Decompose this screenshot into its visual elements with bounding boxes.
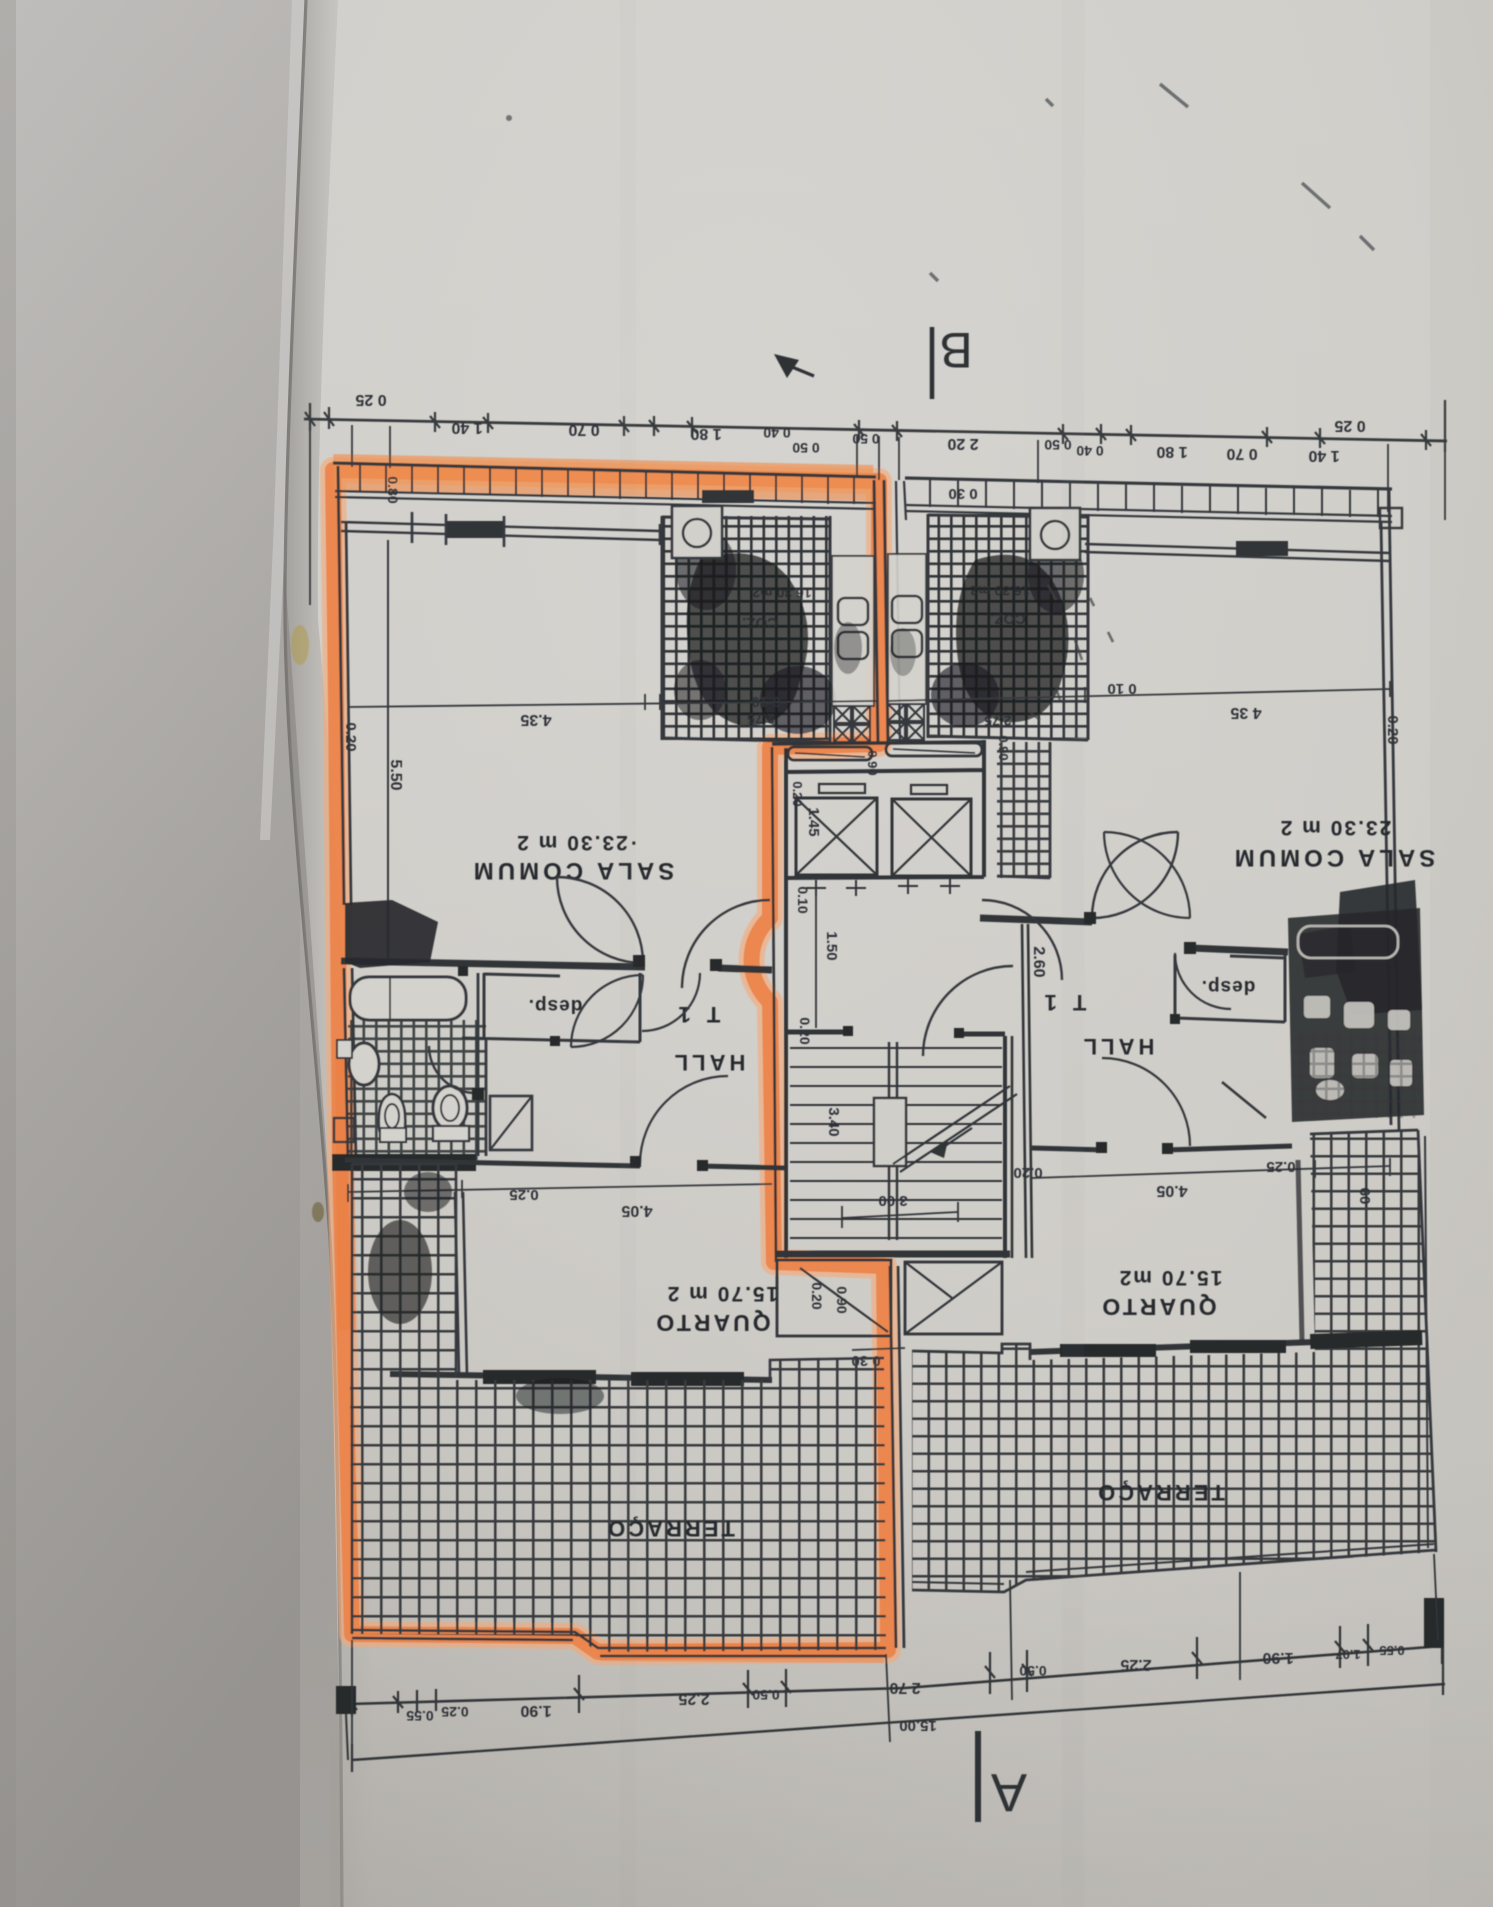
svg-text:0.55: 0.55 [406, 1708, 433, 1724]
svg-text:2.75: 2.75 [984, 713, 1011, 729]
svg-text:COZ.: COZ. [990, 610, 1026, 627]
svg-text:4 35: 4 35 [1230, 704, 1261, 721]
svg-text:0.90: 0.90 [834, 1286, 850, 1313]
svg-text:1.50: 1.50 [823, 931, 840, 960]
svg-text:3.40: 3.40 [825, 1107, 842, 1136]
svg-text:0 10: 0 10 [1107, 680, 1136, 697]
svg-text:0.20: 0.20 [1384, 715, 1401, 744]
svg-text:0 25: 0 25 [1334, 417, 1365, 434]
svg-text:15.00: 15.00 [899, 1717, 937, 1734]
svg-text:15.70 m 2: 15.70 m 2 [666, 1282, 779, 1305]
svg-text:SALA COMUM: SALA COMUM [470, 857, 674, 884]
svg-text:2.75: 2.75 [747, 711, 774, 727]
svg-text:desp.: desp. [1201, 976, 1256, 997]
svg-text:15.70 m2: 15.70 m2 [1118, 1266, 1223, 1289]
svg-text:0 25: 0 25 [355, 391, 386, 408]
svg-text:0.20: 0.20 [1013, 1164, 1042, 1181]
svg-text:1.45: 1.45 [805, 807, 822, 836]
svg-text:2.25: 2.25 [1120, 1656, 1151, 1673]
svg-text:1.90: 1.90 [520, 1702, 551, 1719]
svg-text:2 20: 2 20 [947, 435, 978, 452]
svg-text:0 50: 0 50 [852, 431, 879, 447]
svg-text:TERRAÇO: TERRAÇO [1095, 1480, 1225, 1505]
svg-text:0.20: 0.20 [342, 722, 359, 751]
svg-text:2 70: 2 70 [889, 1679, 920, 1696]
svg-text:1 80: 1 80 [690, 425, 721, 442]
svg-text:16.30 m2: 16.30 m2 [752, 585, 811, 601]
svg-text:0.25: 0.25 [1266, 1158, 1295, 1175]
svg-text:0 70: 0 70 [1226, 445, 1257, 462]
svg-text:desp.: desp. [528, 995, 583, 1016]
svg-text:SALA COMUM: SALA COMUM [1231, 844, 1435, 871]
svg-text:HALL: HALL [671, 1050, 746, 1075]
svg-text:23.30 m 2: 23.30 m 2 [1279, 816, 1392, 839]
svg-text:0.10: 0.10 [751, 693, 780, 710]
svg-text:1.90: 1.90 [1262, 1649, 1293, 1666]
svg-text:1.07: 1.07 [1335, 1647, 1360, 1662]
svg-text:0.20: 0.20 [809, 1282, 825, 1309]
svg-text:QUARTO: QUARTO [1099, 1294, 1216, 1320]
svg-text:0.25: 0.25 [441, 1704, 468, 1720]
svg-text:0 50: 0 50 [792, 440, 819, 456]
svg-text:4.35: 4.35 [520, 711, 551, 728]
svg-text:HALL: HALL [1080, 1034, 1155, 1059]
svg-text:QUARTO: QUARTO [653, 1310, 770, 1336]
svg-text:0 40: 0 40 [763, 425, 790, 441]
svg-text:3 00: 3 00 [878, 1192, 907, 1209]
svg-text:0.55: 0.55 [1379, 1643, 1404, 1658]
svg-text:16.30 m2: 16.30 m2 [970, 583, 1029, 599]
svg-text:2.60: 2.60 [1030, 946, 1047, 977]
svg-text:0 70: 0 70 [568, 421, 599, 438]
svg-text:1 40: 1 40 [1308, 447, 1339, 464]
svg-text:0.50: 0.50 [752, 1687, 779, 1703]
svg-text:B: B [939, 322, 972, 378]
svg-text:COZ.: COZ. [742, 614, 778, 631]
svg-text:1 40: 1 40 [451, 419, 482, 436]
svg-text:0.20: 0.20 [790, 781, 805, 806]
svg-text:T 1: T 1 [674, 1002, 721, 1027]
svg-text:4.05: 4.05 [1156, 1182, 1187, 1199]
svg-text:1 80: 1 80 [1156, 443, 1187, 460]
svg-text:60: 60 [1356, 1188, 1373, 1205]
svg-text:0.80: 0.80 [385, 476, 401, 503]
svg-text:A: A [991, 1762, 1027, 1822]
svg-text:2.25: 2.25 [678, 1690, 709, 1707]
svg-text:·23.30 m 2: ·23.30 m 2 [515, 831, 637, 854]
svg-text:0 30: 0 30 [948, 485, 977, 502]
svg-text:0.10: 0.10 [795, 886, 811, 913]
svg-text:0.50: 0.50 [1019, 1663, 1046, 1679]
svg-text:0.25: 0.25 [509, 1186, 538, 1203]
svg-text:5.50: 5.50 [387, 759, 404, 790]
